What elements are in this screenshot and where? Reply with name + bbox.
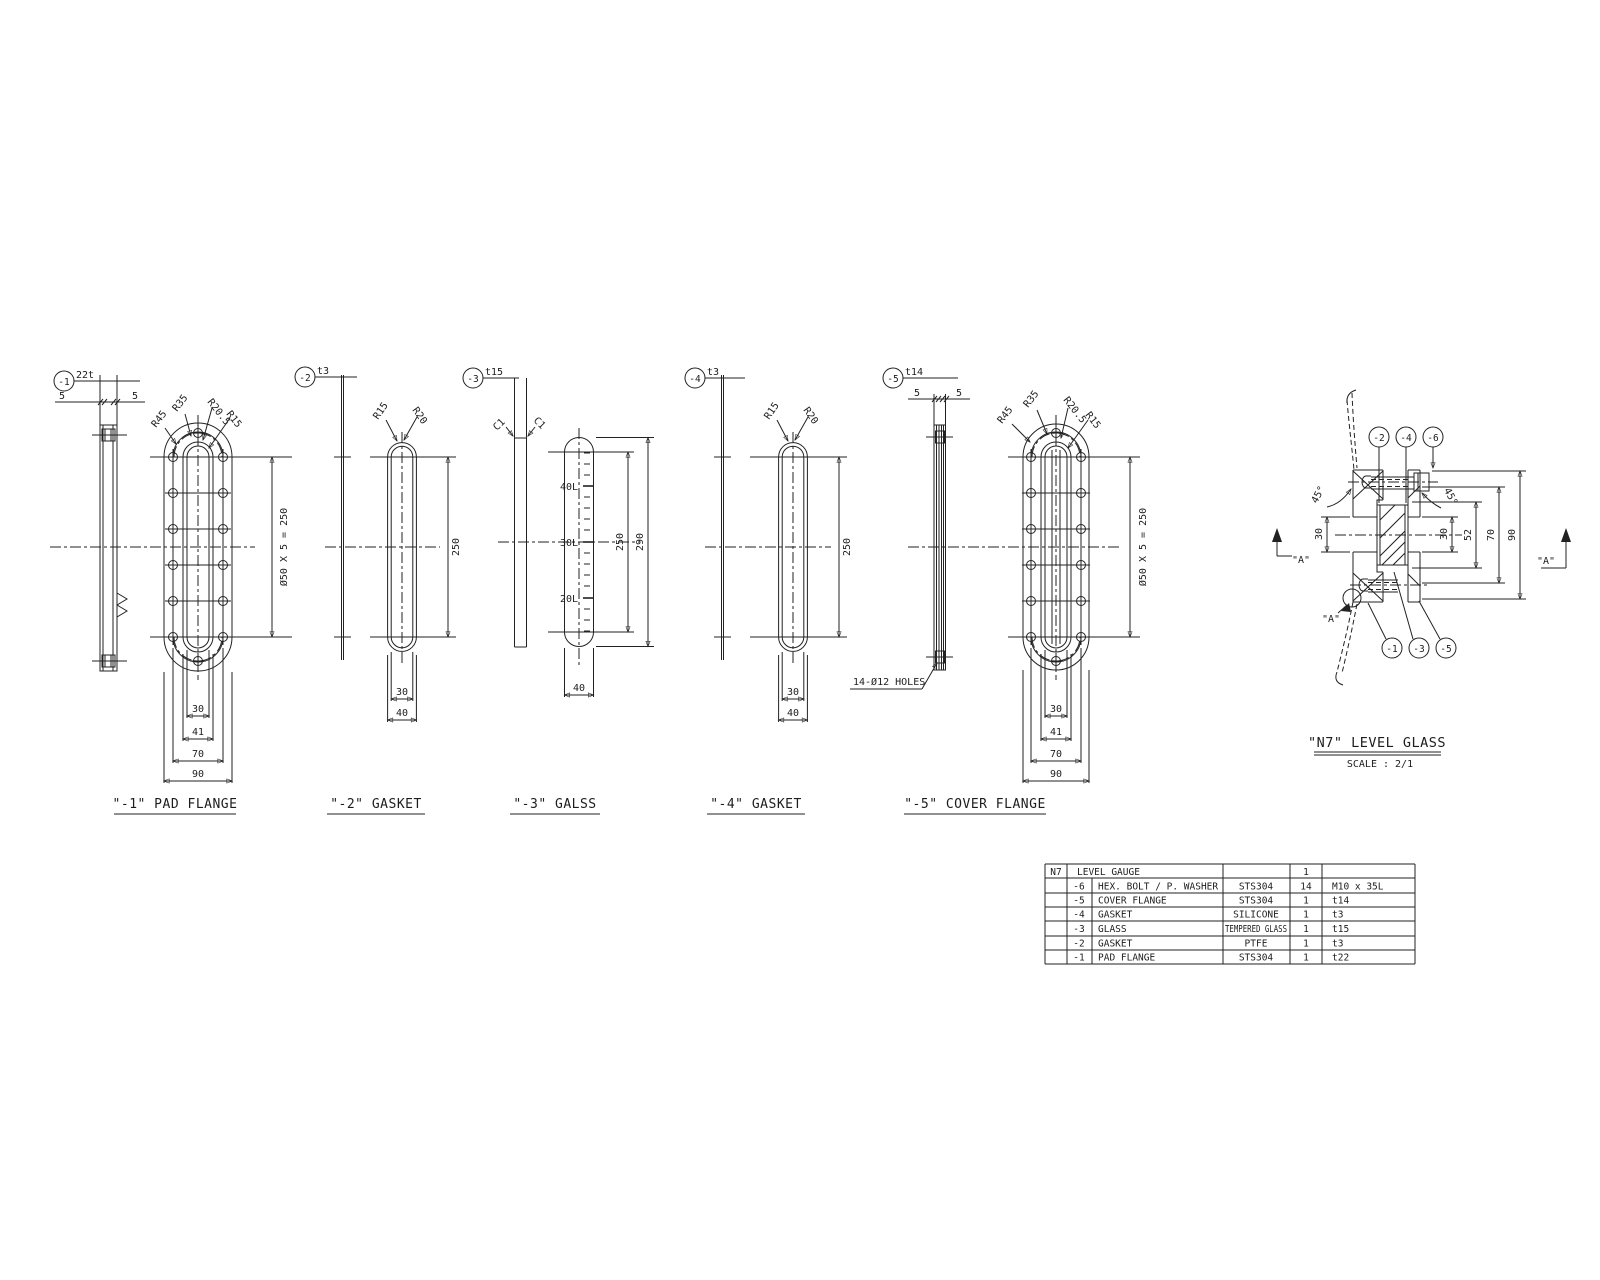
cad-drawing-canvas: -1 22t 5 5 R45 R35 R20.5 R15 Ø50 X 5 = 2… [0, 0, 1600, 1280]
radius-label: R15 [224, 409, 244, 430]
bom-cell-qty: 1 [1303, 867, 1309, 878]
angle-label: 45° [1441, 486, 1459, 507]
bom-cell-no: -5 [1073, 896, 1084, 907]
view-gasket-ptfe: -2 t3 R15 R20 250 30 40 "-2" GASKET [295, 366, 462, 814]
radius-label: R45 [150, 409, 170, 430]
view-title: "-5" COVER FLANGE [904, 797, 1046, 812]
assembly-section-view: 45° 45° 30 30 52 70 90 -2 -4 -6 -1 -3 -5… [1272, 390, 1571, 770]
bom-cell-material: STS304 [1239, 953, 1274, 964]
gauge-mark-label: 30L [560, 538, 578, 549]
dim-label: 30 [1314, 528, 1325, 540]
dim-label: 5 [956, 388, 962, 399]
dim-label: 52 [1463, 529, 1474, 541]
balloon-label: -4 [689, 374, 701, 385]
dim-label: Ø50 X 5 = 250 [1137, 508, 1149, 586]
dim-label: 30 [1439, 528, 1450, 540]
gauge-mark-label: 20L [560, 594, 578, 605]
bom-cell-qty: 1 [1303, 939, 1309, 950]
view-title: "-4" GASKET [710, 797, 802, 812]
dim-label: 40 [396, 708, 408, 719]
bom-cell-qty: 1 [1303, 953, 1309, 964]
chamfer-label: C1 [491, 417, 507, 433]
radius-label: R20 [801, 405, 820, 426]
view-cover-flange: -5 t14 5 5 R45 R35 R20.5 R15 Ø50 X 5 = 2… [850, 367, 1149, 814]
bom-cell-qty: 1 [1303, 910, 1309, 921]
bom-cell-no: -6 [1073, 882, 1085, 893]
dim-label: 290 [635, 533, 646, 551]
radius-label: R35 [1022, 389, 1042, 410]
bom-cell-material: TEMPERED GLASS [1225, 924, 1287, 935]
balloon-label: -6 [1427, 433, 1439, 444]
radius-label: R20 [410, 405, 429, 426]
dim-label: 30 [787, 687, 799, 698]
balloon-label: -2 [299, 373, 310, 384]
dim-label: 40 [573, 683, 585, 694]
bom-cell-remark: t3 [1332, 910, 1343, 921]
gauge-mark-label: 40L [560, 482, 578, 493]
bom-cell-remark: t22 [1332, 953, 1349, 964]
bom-cell-material: PTFE [1245, 939, 1268, 950]
dim-label: 70 [192, 749, 204, 760]
view-gasket-silicone: -4 t3 R15 R20 250 30 40 "-4" GASKET [685, 367, 853, 814]
bom-cell-name: GASKET [1098, 939, 1133, 950]
angle-label: 45° [1310, 484, 1328, 505]
radius-label: R35 [171, 393, 191, 414]
view-title: "-1" PAD FLANGE [113, 797, 238, 812]
balloon-label: -5 [1440, 644, 1451, 655]
bom-cell-material: SILICONE [1233, 910, 1279, 921]
bom-cell-no: -1 [1073, 953, 1085, 964]
dim-label: 41 [1050, 727, 1062, 738]
dim-label: 30 [192, 704, 204, 715]
bom-cell-qty: 1 [1303, 924, 1309, 935]
dim-label: 90 [1507, 529, 1518, 541]
dim-label: 90 [1050, 769, 1062, 780]
dim-label: 41 [192, 727, 204, 738]
bom-cell-name: LEVEL GAUGE [1077, 867, 1140, 878]
balloon-label: -3 [467, 374, 478, 385]
bom-cell-material: STS304 [1239, 896, 1274, 907]
balloon-label: -3 [1413, 644, 1424, 655]
dim-label: 30 [396, 687, 408, 698]
balloon-label: -1 [1386, 644, 1398, 655]
dim-label: 30 [1050, 704, 1062, 715]
bom-cell-qty: 14 [1300, 882, 1312, 893]
thickness-label: 22t [76, 370, 94, 381]
view-title: "-3" GALSS [513, 797, 596, 812]
thickness-label: t3 [707, 367, 719, 378]
balloon-label: -2 [1373, 433, 1384, 444]
dim-label: 70 [1486, 529, 1497, 541]
section-mark-a: "A" [1537, 556, 1555, 567]
balloon-label: -5 [887, 374, 898, 385]
view-pad-flange: -1 22t 5 5 R45 R35 R20.5 R15 Ø50 X 5 = 2… [50, 370, 292, 814]
holes-note: 14-Ø12 HOLES [853, 676, 925, 688]
dim-label: 5 [132, 391, 138, 402]
bom-cell-qty: 1 [1303, 896, 1309, 907]
radius-label: R15 [371, 401, 390, 422]
bom-cell-remark: M10 x 35L [1332, 882, 1384, 893]
bom-cell-name: GASKET [1098, 910, 1133, 921]
bom-table: N7 LEVEL GAUGE 1 -6 HEX. BOLT / P. WASHE… [1045, 864, 1415, 964]
view-title: "-2" GASKET [330, 797, 422, 812]
bom-cell-no: -2 [1073, 939, 1084, 950]
dim-label: 250 [842, 538, 853, 556]
radius-label: R45 [996, 405, 1016, 426]
bom-cell-name: GLASS [1098, 924, 1127, 935]
assembly-scale: SCALE : 2/1 [1347, 759, 1413, 770]
assembly-title: "N7" LEVEL GLASS [1308, 735, 1446, 751]
thickness-label: t14 [905, 367, 923, 378]
dim-label: 70 [1050, 749, 1062, 760]
bom-cell-remark: t15 [1332, 924, 1349, 935]
dim-label: 250 [615, 533, 626, 551]
dim-label: 5 [59, 391, 65, 402]
bom-cell-material: STS304 [1239, 882, 1274, 893]
section-mark-a: "A" [1292, 555, 1310, 566]
dim-label: 5 [914, 388, 920, 399]
view-glass: -3 t15 C1 C1 40L 30L 20L 250 290 40 "-3"… [463, 367, 654, 814]
section-mark-a: "A" [1322, 614, 1340, 625]
dim-label: 40 [787, 708, 799, 719]
dim-label: 90 [192, 769, 204, 780]
balloon-label: -4 [1400, 433, 1412, 444]
radius-label: R15 [1083, 410, 1103, 431]
bom-cell-no: -4 [1073, 910, 1085, 921]
bom-cell-no: -3 [1073, 924, 1084, 935]
bom-cell-remark: t3 [1332, 939, 1343, 950]
bom-cell-remark: t14 [1332, 896, 1349, 907]
thickness-label: t3 [317, 366, 329, 377]
balloon-label: -1 [58, 377, 70, 388]
bom-tag: N7 [1050, 867, 1061, 878]
bom-cell-name: PAD FLANGE [1098, 953, 1155, 964]
bom-cell-name: COVER FLANGE [1098, 896, 1167, 907]
drawing-sheet: -1 22t 5 5 R45 R35 R20.5 R15 Ø50 X 5 = 2… [0, 0, 1600, 1280]
dim-label: Ø50 X 5 = 250 [278, 508, 290, 586]
dim-label: 250 [451, 538, 462, 556]
thickness-label: t15 [485, 367, 503, 378]
bom-cell-name: HEX. BOLT / P. WASHER [1098, 882, 1218, 893]
radius-label: R15 [762, 401, 781, 422]
